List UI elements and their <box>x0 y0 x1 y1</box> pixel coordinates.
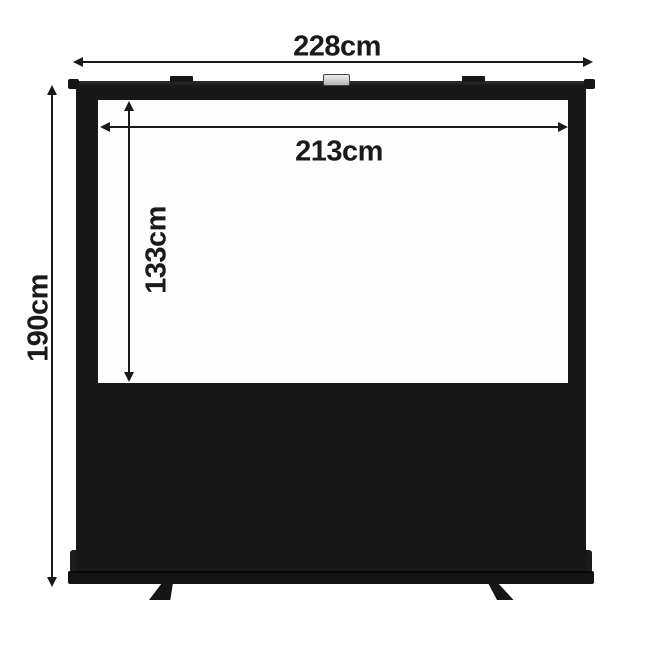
floor-base-bar <box>68 571 594 584</box>
screen-height-dimension-arrow <box>123 101 135 382</box>
arrow-line <box>128 109 130 374</box>
total-height-label: 190cm <box>23 274 56 362</box>
right-stabilizer-foot <box>486 583 515 600</box>
arrow-line <box>108 126 560 128</box>
left-stabilizer-foot <box>149 583 175 600</box>
total-width-label: 228cm <box>293 31 381 64</box>
arrow-down-head-icon <box>47 577 57 587</box>
arrow-down-head-icon <box>124 372 134 382</box>
arrow-right-head-icon <box>583 57 593 67</box>
top-bar-left-tab <box>170 76 193 82</box>
projector-screen-dimension-diagram: 228cm 213cm 133cm 190cm <box>0 0 650 650</box>
top-bar-right-tab <box>462 76 485 82</box>
screen-width-label: 213cm <box>295 136 383 169</box>
screen-width-dimension-arrow <box>100 121 568 133</box>
carry-handle <box>323 74 350 86</box>
screen-height-label: 133cm <box>141 206 174 294</box>
arrow-right-head-icon <box>558 122 568 132</box>
